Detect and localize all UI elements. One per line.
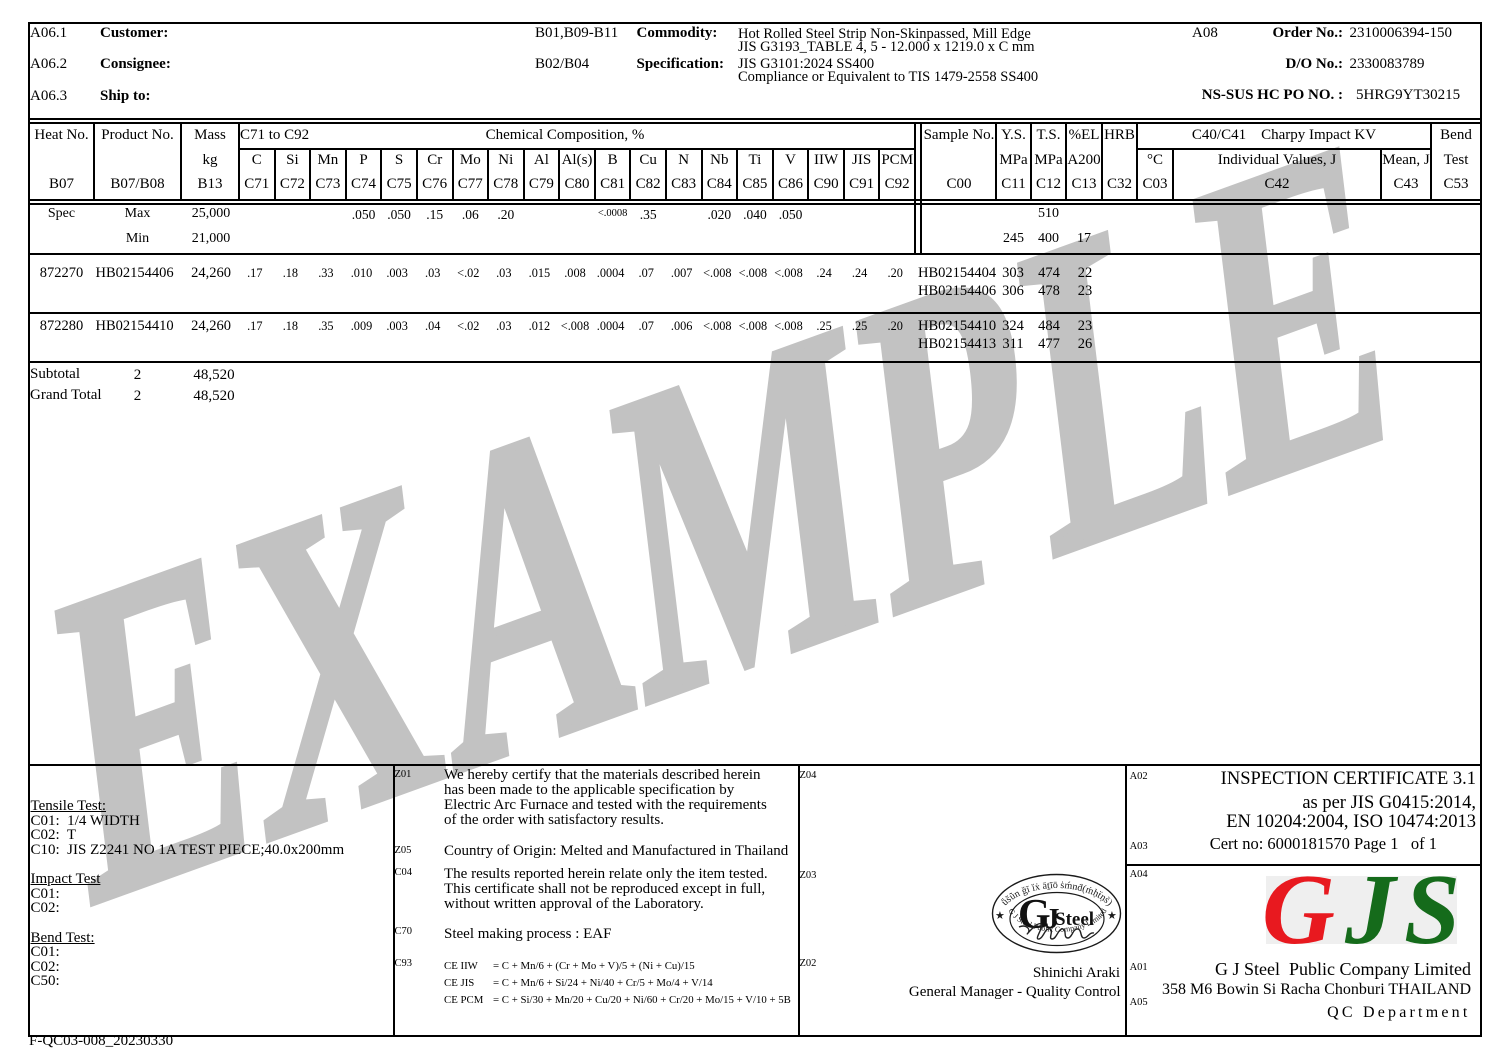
svg-text:★: ★ (1107, 910, 1117, 922)
svg-text:★: ★ (995, 910, 1005, 922)
svg-text:Steel: Steel (1055, 909, 1094, 930)
